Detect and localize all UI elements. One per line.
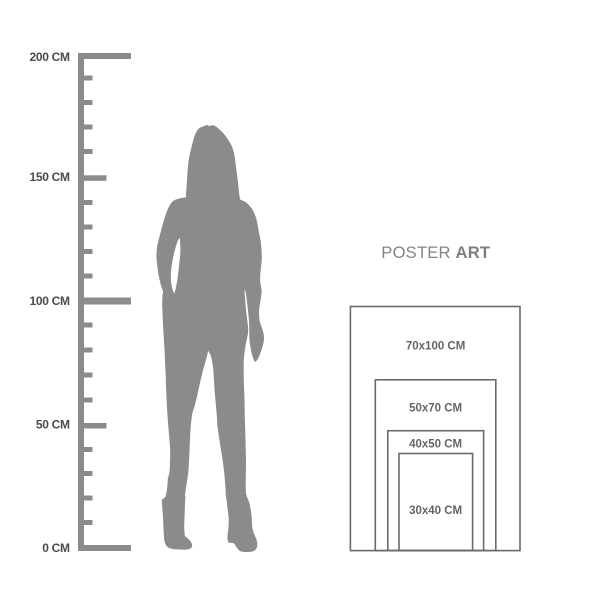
svg-text:POSTER ART: POSTER ART	[381, 243, 490, 262]
svg-text:70x100 CM: 70x100 CM	[406, 341, 465, 353]
svg-text:50x70 CM: 50x70 CM	[409, 402, 462, 414]
svg-text:0 CM: 0 CM	[42, 541, 70, 555]
svg-text:200 CM: 200 CM	[29, 50, 70, 64]
svg-text:100 CM: 100 CM	[29, 294, 70, 308]
svg-text:40x50 CM: 40x50 CM	[409, 439, 462, 451]
svg-text:30x40 CM: 30x40 CM	[409, 505, 462, 517]
svg-text:50 CM: 50 CM	[36, 417, 70, 431]
svg-text:150 CM: 150 CM	[29, 170, 70, 184]
